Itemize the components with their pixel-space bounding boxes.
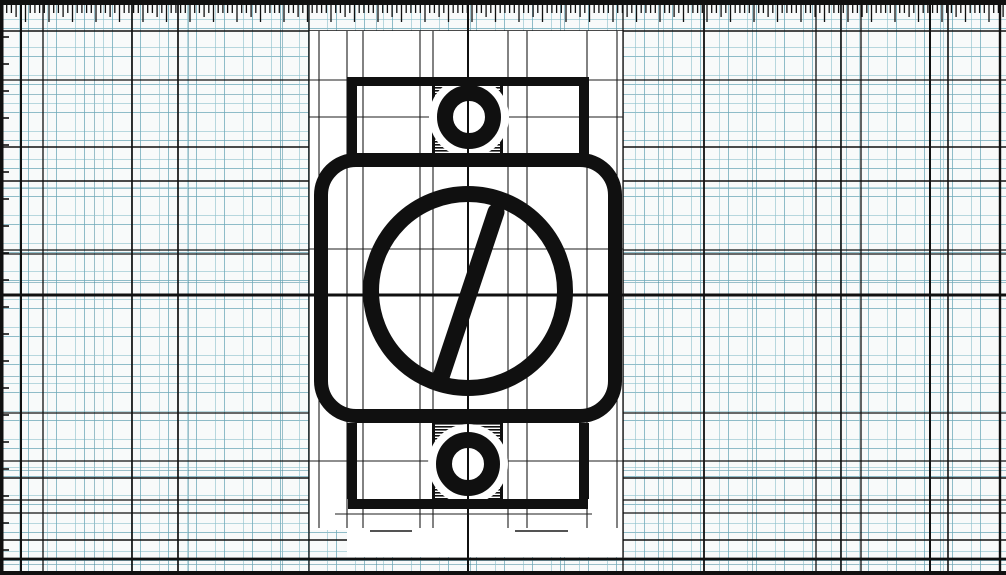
bottom-right-connector: [579, 423, 589, 499]
drawing-sheet-extension: [347, 530, 623, 557]
top-border: [0, 0, 1006, 5]
top-right-connector: [579, 77, 589, 155]
schematic-drawing: [0, 0, 1006, 575]
drafting-canvas: [0, 0, 1006, 575]
top-left-connector: [347, 77, 357, 155]
bottom-mount-plate: [348, 499, 588, 509]
top-mount-plate: [348, 77, 588, 86]
bottom-left-connector: [347, 423, 357, 499]
bottom-border: [0, 571, 1006, 575]
